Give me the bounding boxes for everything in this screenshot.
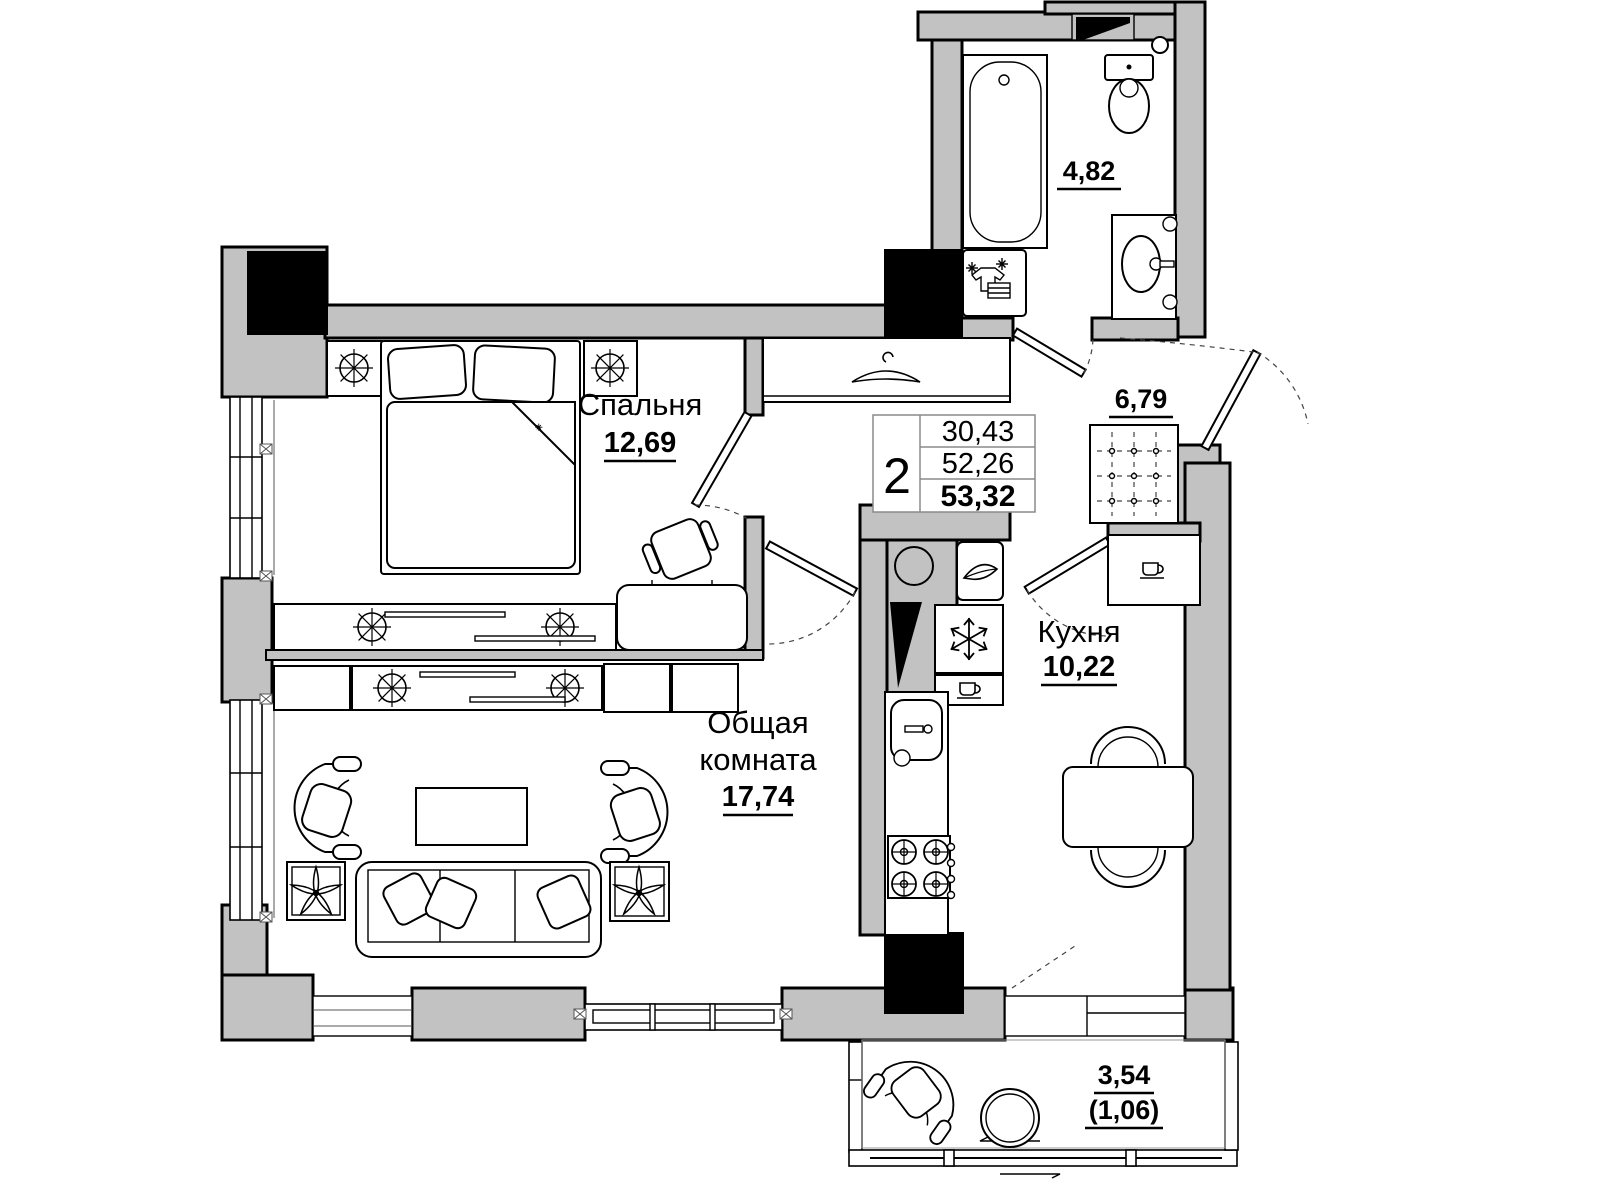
door-living	[766, 541, 857, 644]
media-console	[274, 664, 738, 712]
living-label-2: комната	[699, 742, 817, 777]
balcony-area-coef: (1,06)	[1089, 1095, 1160, 1125]
balcony-chair	[861, 1043, 973, 1147]
living-room-furniture	[274, 664, 738, 957]
dining-chair	[1091, 847, 1165, 887]
bedroom-area: 12,69	[604, 427, 677, 459]
balcony-door-window	[1005, 944, 1185, 1036]
room-count: 2	[883, 448, 911, 504]
vanity-sink	[1112, 215, 1177, 319]
boiler	[895, 547, 933, 585]
door-bathroom	[1013, 329, 1093, 377]
plant-stand-left	[287, 862, 345, 920]
window-bedroom-left	[230, 397, 262, 578]
window-living-left	[230, 700, 262, 920]
living-area: 17,74	[722, 781, 795, 813]
shaft-top-middle	[885, 250, 962, 338]
wardrobe	[763, 338, 1010, 402]
hallway-area: 6,79	[1115, 384, 1168, 414]
nightstand-left	[327, 341, 382, 396]
living-area-value: 30,43	[942, 416, 1015, 448]
shaft-bedroom-corner	[248, 252, 327, 334]
bathtub	[963, 55, 1047, 248]
lamp-icon	[335, 349, 373, 387]
toilet	[1105, 55, 1153, 133]
sofa	[356, 862, 601, 957]
kitchen-label: Кухня	[1038, 614, 1121, 649]
lamp-icon	[591, 349, 629, 387]
desk-chair	[638, 512, 723, 585]
pillow	[387, 344, 466, 399]
plant-stand-right	[610, 862, 669, 921]
vent-wedge-bath-top	[1072, 14, 1134, 40]
floor-plan-drawing: 2 30,43 52,26 53,32 Спальня 12,69 Общая …	[0, 0, 1600, 1200]
cabinet-leaf	[957, 542, 1003, 600]
floor-plan-page: 2 30,43 52,26 53,32 Спальня 12,69 Общая …	[0, 0, 1600, 1200]
window-living-bottom	[585, 1004, 782, 1030]
chest	[617, 580, 747, 650]
armchair-left	[295, 757, 361, 859]
dining-table	[1063, 727, 1193, 887]
window-living-bottom-left	[313, 996, 412, 1036]
armchair-right	[601, 761, 667, 863]
balcony-table	[981, 1089, 1039, 1147]
balcony-furniture	[861, 1043, 1039, 1147]
bathroom-area: 4,82	[1063, 156, 1116, 186]
balcony-area: 3,54	[1098, 1060, 1151, 1090]
floor-area-value: 52,26	[942, 448, 1015, 480]
coffee-table	[416, 788, 527, 845]
fan-icon	[373, 669, 411, 707]
cabinet-cup-wall	[1108, 535, 1200, 605]
living-label-1: Общая	[707, 705, 808, 740]
stove	[888, 836, 955, 899]
dining-chair	[1091, 727, 1165, 767]
fridge	[935, 605, 1003, 673]
hall-grid-cabinet	[1090, 425, 1178, 523]
door-bedroom	[692, 412, 751, 519]
dresser	[274, 604, 616, 650]
total-area-value: 53,32	[940, 480, 1015, 513]
double-bed	[381, 341, 580, 574]
info-table: 2 30,43 52,26 53,32	[873, 415, 1035, 513]
pillow	[473, 345, 556, 403]
washing-machine	[963, 250, 1026, 316]
kitchen-area: 10,22	[1043, 651, 1116, 683]
vent-circle	[1152, 37, 1168, 53]
bedroom-label: Спальня	[578, 387, 703, 422]
shaft-kitchen-bottom	[885, 933, 963, 1013]
